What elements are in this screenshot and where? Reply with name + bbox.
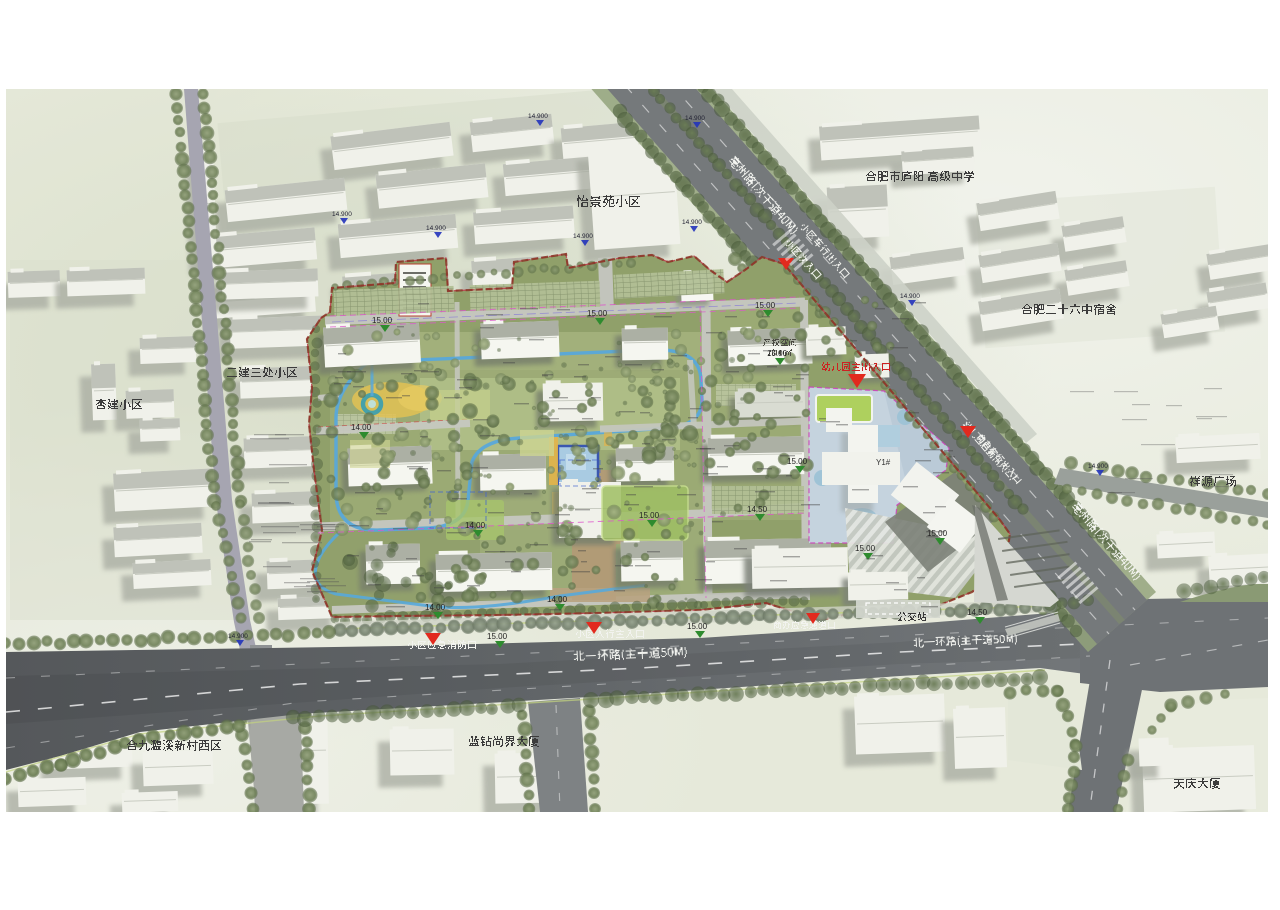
- svg-text:15.00: 15.00: [787, 457, 808, 466]
- svg-text:15.00: 15.00: [372, 316, 393, 325]
- svg-text:14.00: 14.00: [425, 603, 446, 612]
- svg-text:14.900: 14.900: [900, 293, 920, 300]
- svg-text:14.50: 14.50: [967, 608, 988, 617]
- svg-text:14.900: 14.900: [1088, 463, 1108, 470]
- svg-text:15.00: 15.00: [855, 544, 876, 553]
- svg-text:14.900: 14.900: [228, 633, 248, 640]
- svg-text:14.00: 14.00: [547, 595, 568, 604]
- svg-text:14.50: 14.50: [747, 505, 768, 514]
- svg-text:15.00: 15.00: [639, 511, 660, 520]
- svg-text:14.900: 14.900: [682, 219, 702, 226]
- svg-text:14.900: 14.900: [332, 211, 352, 218]
- svg-text:14.900: 14.900: [426, 225, 446, 232]
- svg-text:Y1#: Y1#: [876, 458, 891, 467]
- svg-text:14.900: 14.900: [685, 115, 705, 122]
- svg-text:14.00: 14.00: [351, 423, 372, 432]
- svg-text:14.00: 14.00: [465, 521, 486, 530]
- svg-text:15.00: 15.00: [487, 632, 508, 641]
- svg-text:15.00: 15.00: [755, 301, 776, 310]
- svg-text:14.900: 14.900: [528, 113, 548, 120]
- svg-text:14.900: 14.900: [573, 233, 593, 240]
- svg-text:15.00: 15.00: [687, 622, 708, 631]
